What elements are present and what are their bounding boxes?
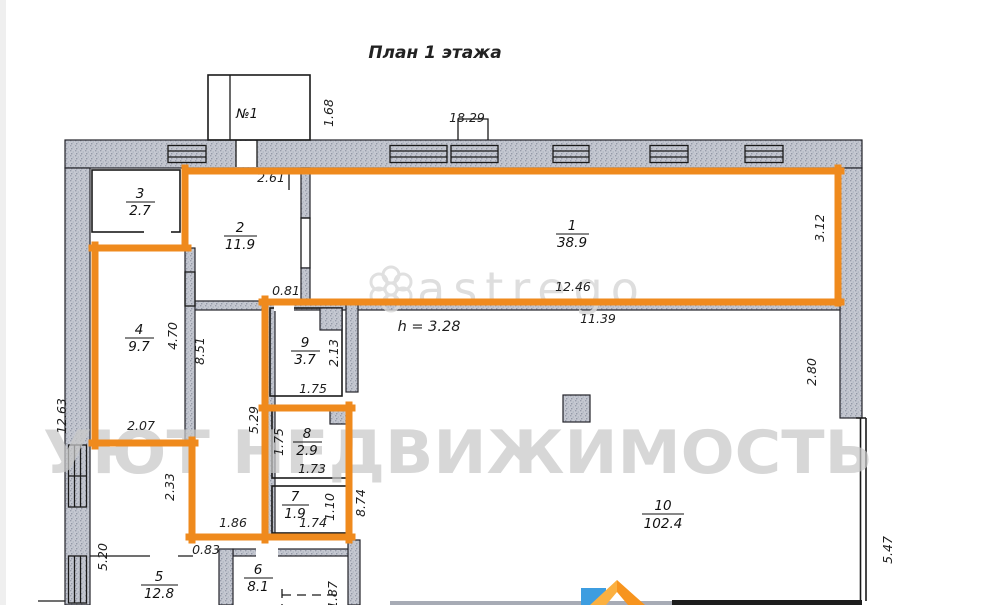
room5-room6-wall [219, 549, 233, 605]
dim-room1-bottom: 12.46 [555, 279, 591, 294]
svg-text:11.9: 11.9 [225, 237, 255, 253]
dim-room7-right: 1.10 [322, 493, 337, 521]
room2-room1-wall-lower [301, 268, 310, 301]
dim-left-total: 12.63 [54, 398, 69, 434]
dim-hall-width: 1.86 [219, 515, 247, 530]
room9-corner-pier [320, 308, 342, 330]
dim-room8-bottom: 1.73 [298, 461, 326, 476]
room6-north-wall [233, 549, 352, 556]
room9-east-wall [346, 300, 358, 392]
room6-east-wall [348, 540, 360, 605]
room6-door [256, 547, 278, 558]
svg-text:12.8: 12.8 [144, 586, 174, 602]
room2-room1-wall-upper [301, 168, 310, 218]
dim-room4-bottom: 2.07 [127, 418, 155, 433]
svg-text:10: 10 [654, 498, 671, 514]
dim-left-lower: 5.20 [95, 543, 110, 571]
dim-hall-mid: 2.33 [162, 473, 177, 501]
svg-text:38.9: 38.9 [557, 235, 587, 251]
watermark-brand: astrego [417, 262, 647, 316]
dim-door-lower: 0.83 [192, 542, 220, 557]
right-wall-upper [840, 168, 862, 418]
dim-room1-right: 3.12 [812, 214, 827, 242]
dim-room4-upper: 4.70 [165, 322, 180, 350]
svg-text:9: 9 [301, 335, 310, 351]
dim-room10-wall: 8.74 [353, 489, 368, 517]
dim-right-lower: 5.47 [880, 536, 895, 564]
dim-room8-left: 1.75 [271, 428, 286, 456]
top-wall [65, 140, 862, 168]
dim-room9-right: 2.13 [326, 339, 341, 367]
room3-door [144, 229, 171, 234]
svg-text:2: 2 [236, 220, 245, 236]
dim-room4-wall: 8.51 [192, 337, 207, 365]
plan-title: План 1 этажа [368, 43, 501, 63]
dim-room2-door: 0.81 [272, 283, 300, 298]
svg-text:5: 5 [155, 569, 164, 585]
dim-room6-right: 1.87 [325, 581, 340, 605]
floor-plan-page: astrego УЮТ НЕДВИЖИМОСТЬ План 1 этажа №1… [0, 0, 1000, 605]
dim-porch-height: 1.68 [321, 99, 336, 127]
svg-text:8.1: 8.1 [247, 579, 268, 595]
svg-text:6: 6 [254, 562, 263, 578]
dim-top-width: 18.29 [449, 110, 485, 125]
bottom-wall-dark [672, 600, 862, 605]
svg-text:8: 8 [303, 426, 312, 442]
dim-right-upper: 2.80 [804, 358, 819, 386]
ceiling-height-note: h = 3.28 [398, 319, 461, 335]
room9-door [274, 305, 294, 311]
svg-text:9.7: 9.7 [128, 339, 150, 355]
svg-text:2.9: 2.9 [296, 443, 317, 459]
dim-room9-bottom: 1.75 [299, 381, 327, 396]
porch-label: №1 [235, 107, 258, 122]
left-wall [65, 168, 90, 605]
floor-plan-drawing: astrego УЮТ НЕДВИЖИМОСТЬ План 1 этажа №1… [0, 0, 1000, 605]
svg-text:2.7: 2.7 [129, 203, 151, 219]
svg-text:7: 7 [291, 489, 300, 505]
svg-text:3.7: 3.7 [294, 352, 316, 368]
porch-door-opening [236, 141, 257, 167]
svg-text:102.4: 102.4 [644, 516, 683, 532]
svg-text:1: 1 [568, 218, 577, 234]
dim-hall-top: 11.39 [580, 311, 616, 326]
scan-edge [0, 0, 6, 605]
svg-text:4: 4 [135, 322, 144, 338]
svg-text:3: 3 [136, 186, 145, 202]
